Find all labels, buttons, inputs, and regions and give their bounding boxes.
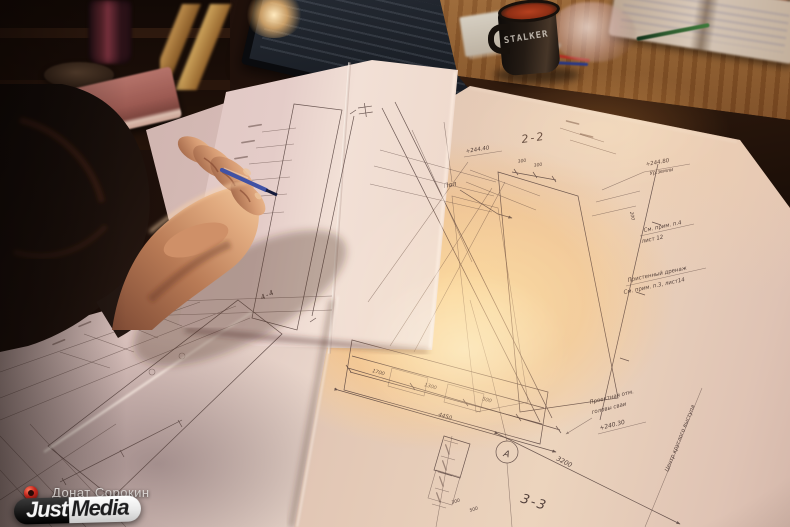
justmedia-logo: Just Media (14, 495, 141, 524)
photo-blueprints-on-desk: STALKER (0, 0, 790, 527)
hand-layer (0, 0, 790, 527)
logo-just: Just (14, 497, 70, 524)
logo-media: Media (69, 495, 141, 523)
